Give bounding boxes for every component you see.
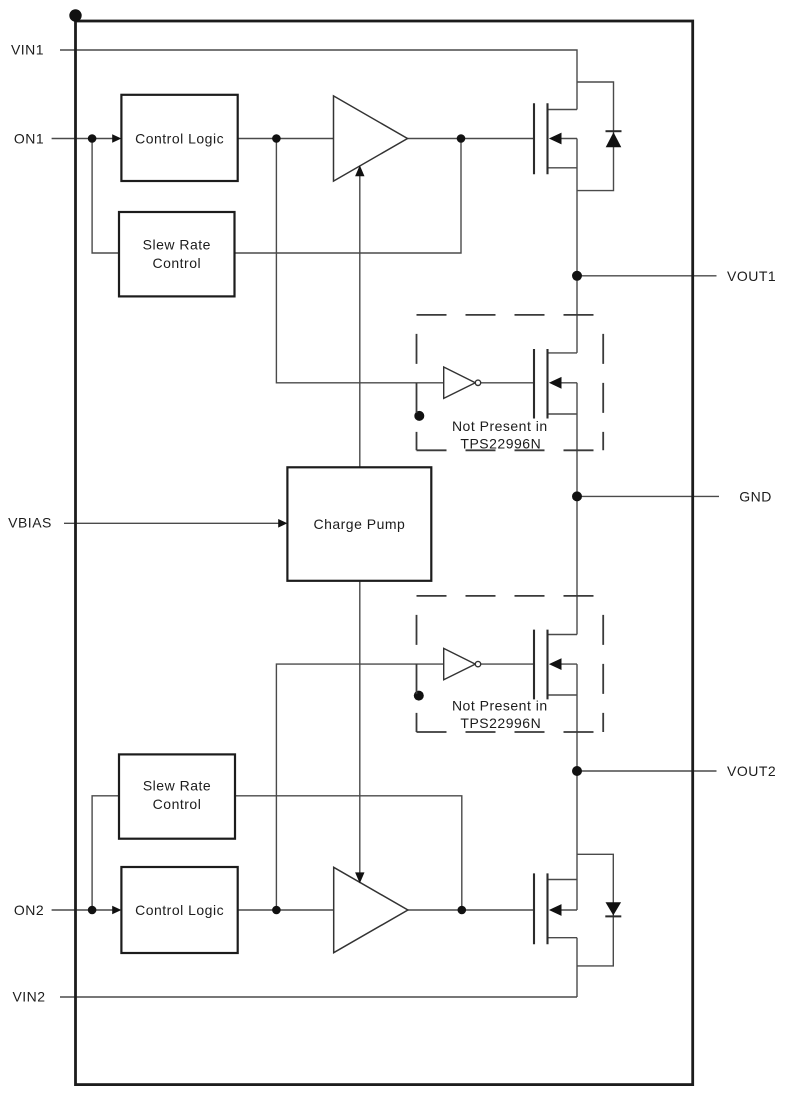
svg-text:Not Present in: Not Present in — [452, 697, 548, 713]
svg-text:Not Present in: Not Present in — [452, 418, 548, 434]
svg-text:Control: Control — [153, 796, 202, 812]
svg-text:Control Logic: Control Logic — [135, 131, 224, 147]
svg-text:Charge Pump: Charge Pump — [313, 516, 405, 532]
svg-text:VOUT1: VOUT1 — [727, 268, 776, 284]
svg-text:VIN2: VIN2 — [12, 989, 45, 1005]
svg-text:GND: GND — [739, 489, 772, 505]
svg-text:ON2: ON2 — [14, 902, 44, 918]
svg-text:Control: Control — [152, 255, 201, 271]
svg-text:TPS22996N: TPS22996N — [460, 715, 541, 731]
svg-text:TPS22996N: TPS22996N — [460, 435, 541, 451]
svg-text:Slew Rate: Slew Rate — [143, 237, 211, 253]
svg-text:Control Logic: Control Logic — [135, 902, 224, 918]
svg-text:ON1: ON1 — [14, 131, 44, 147]
svg-text:VIN1: VIN1 — [11, 42, 44, 58]
svg-text:VBIAS: VBIAS — [8, 515, 52, 531]
svg-text:VOUT2: VOUT2 — [727, 763, 776, 779]
svg-text:Slew Rate: Slew Rate — [143, 778, 211, 794]
